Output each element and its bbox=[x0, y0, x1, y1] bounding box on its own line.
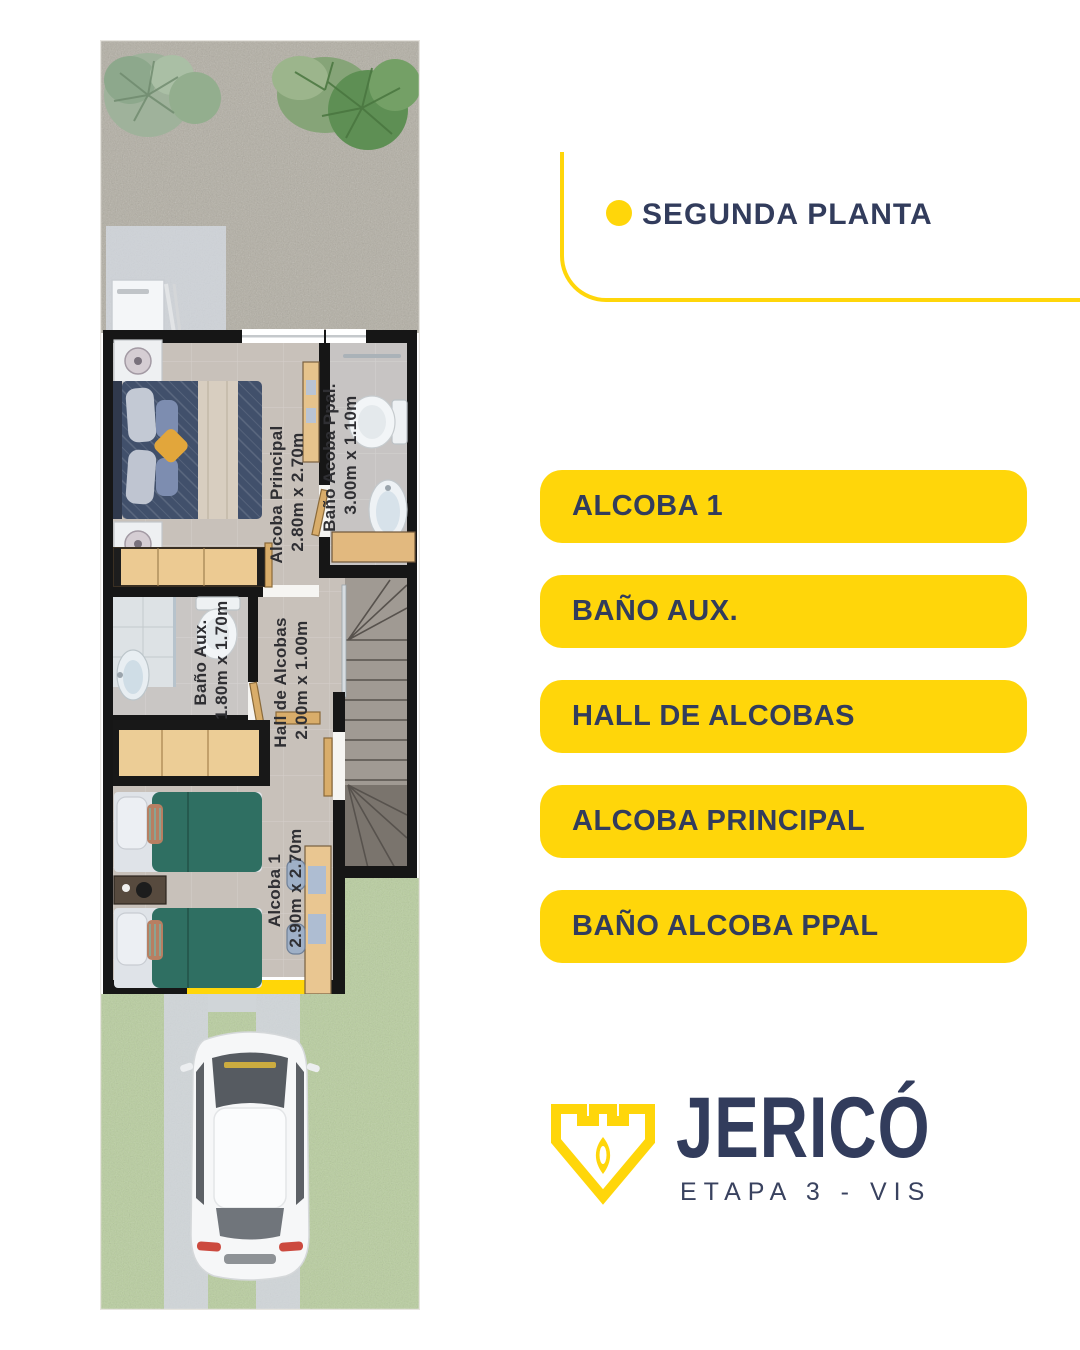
section-header-frame: SEGUNDA PLANTA bbox=[560, 152, 1080, 302]
legend-pill-hall-de-alcobas: HALL DE ALCOBAS bbox=[540, 680, 1027, 753]
nightstand bbox=[114, 340, 162, 382]
patio-slab bbox=[106, 226, 226, 333]
car bbox=[179, 1032, 320, 1280]
windshield bbox=[212, 1053, 288, 1109]
taillight bbox=[197, 1241, 222, 1252]
bed-1 bbox=[114, 792, 262, 872]
lamp bbox=[136, 882, 152, 898]
legend-pill-alcoba-principal: ALCOBA PRINCIPAL bbox=[540, 785, 1027, 858]
legend-pill-alcoba-1: ALCOBA 1 bbox=[540, 470, 1027, 543]
rear-window bbox=[216, 1208, 284, 1240]
legend-pill-label: BAÑO AUX. bbox=[540, 595, 738, 628]
wardrobe-alcoba1 bbox=[113, 720, 270, 786]
brand-lockup: JERICÓ ETAPA 3 - VIS bbox=[548, 1086, 1080, 1246]
flyer-page: Alcoba Principal 2.80m x 2.70m Baño Acob… bbox=[0, 0, 1080, 1350]
castle-shield-logo-icon bbox=[548, 1094, 658, 1212]
sink bbox=[369, 480, 407, 540]
legend-pill-label: ALCOBA PRINCIPAL bbox=[540, 805, 865, 838]
bullet-dot-icon bbox=[606, 200, 632, 226]
towel-bar bbox=[343, 354, 401, 358]
staircase bbox=[342, 578, 407, 870]
bed-2 bbox=[114, 908, 262, 988]
legend-pill-bano-aux: BAÑO AUX. bbox=[540, 575, 1027, 648]
sink bbox=[117, 650, 149, 700]
brand-name: JERICÓ bbox=[676, 1080, 930, 1176]
legend-pill-label: HALL DE ALCOBAS bbox=[540, 700, 855, 733]
taillight bbox=[279, 1241, 304, 1252]
nightstand-dark bbox=[114, 876, 166, 904]
vanity bbox=[332, 532, 415, 562]
legend-pill-label: BAÑO ALCOBA PPAL bbox=[540, 910, 879, 943]
stair-railing bbox=[342, 585, 346, 697]
page-title: SEGUNDA PLANTA bbox=[642, 198, 933, 232]
wardrobe-master bbox=[114, 548, 264, 586]
legend-pill-bano-alcoba-ppal: BAÑO ALCOBA PPAL bbox=[540, 890, 1027, 963]
legend-pill-label: ALCOBA 1 bbox=[540, 490, 723, 523]
garden-area bbox=[100, 40, 420, 333]
brand-subtitle: ETAPA 3 - VIS bbox=[680, 1178, 931, 1207]
floorplan-image: Alcoba Principal 2.80m x 2.70m Baño Acob… bbox=[100, 40, 420, 1310]
master-bed bbox=[113, 381, 262, 519]
